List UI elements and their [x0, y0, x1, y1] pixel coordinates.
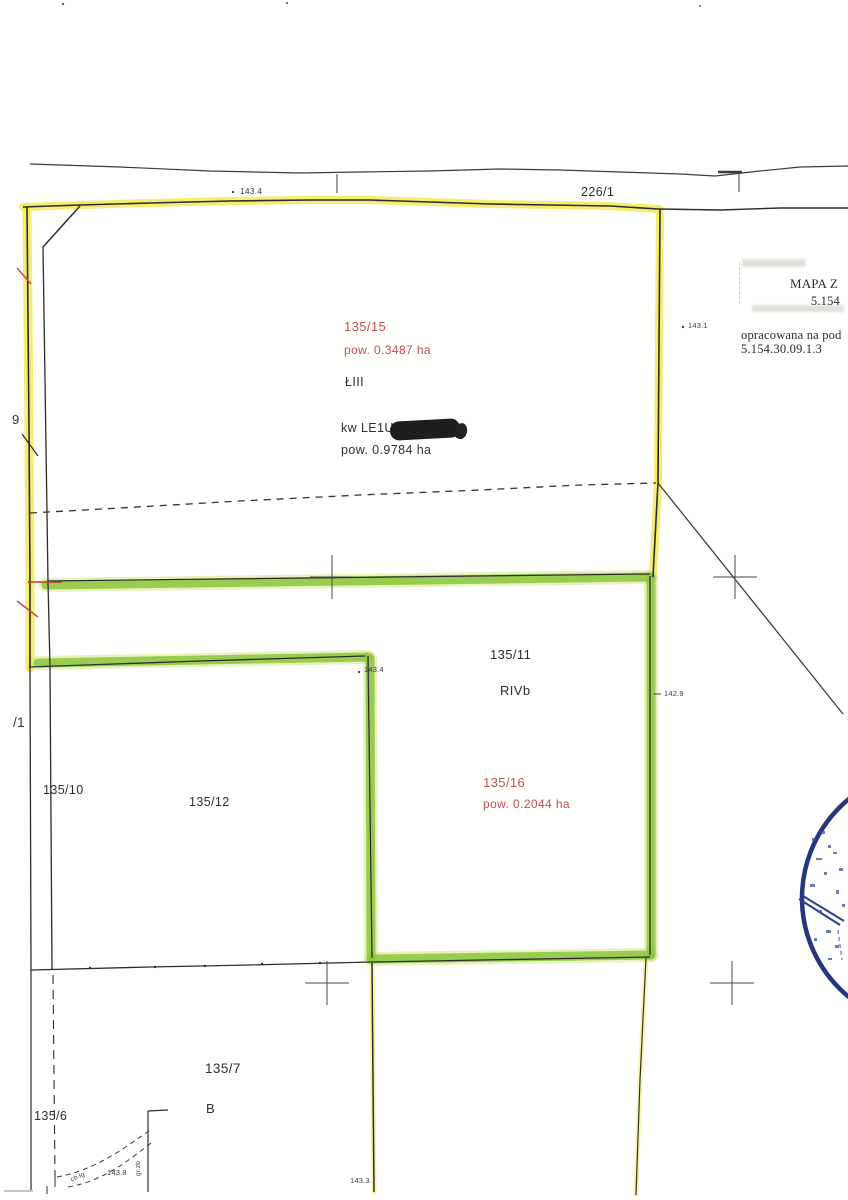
title-block-line4: 5.154.30.09.1.3	[741, 343, 822, 356]
parcel-label-135-6: 135/6	[34, 1110, 67, 1123]
area-label-135-16: pow. 0.2044 ha	[483, 798, 570, 810]
dashed-division-line	[30, 483, 656, 513]
title-block-line2: 5.154	[740, 295, 840, 308]
title-block-line1: MAPA Z	[740, 277, 838, 290]
edge-fragment-bottom: /1	[13, 716, 25, 730]
elevation-point	[682, 326, 684, 328]
parcel-label-135-11: 135/11	[490, 648, 531, 661]
title-block-line3: opracowana na pod	[741, 329, 842, 342]
boundary-type-label: gr.zb	[136, 1161, 143, 1176]
elevation-label-143-4-corner: 143.4	[364, 666, 384, 674]
redaction-scribble	[390, 418, 461, 441]
area-label-135-15: pow. 0.3487 ha	[344, 344, 431, 356]
edge-fragment-top: 9	[12, 413, 20, 426]
road-edge-line	[30, 164, 848, 193]
map-linework	[0, 0, 848, 1200]
diagonal-boundary	[658, 483, 843, 714]
land-class-label-135-11: RIVb	[500, 684, 531, 697]
parcel-label-135-7: 135/7	[205, 1062, 241, 1076]
elevation-point	[232, 191, 234, 193]
building-label-b: B	[206, 1102, 215, 1115]
scan-specks	[62, 2, 701, 7]
faded-text-bar	[742, 259, 806, 267]
parcel-label-135-16: 135/16	[483, 776, 525, 789]
elevation-point	[358, 671, 360, 673]
elevation-label-road: 143.4	[240, 187, 262, 196]
elevation-label-143-1: 143.1	[688, 322, 708, 330]
parcel-label-135-10: 135/10	[43, 784, 84, 797]
elevation-label-143-8: 143.8	[107, 1169, 127, 1177]
elevation-label-142-9: 142.9	[664, 690, 684, 698]
official-stamp	[799, 770, 848, 1026]
parcel-label-226-1: 226/1	[581, 186, 614, 199]
total-area-label: pow. 0.9784 ha	[341, 444, 431, 457]
register-label-kw: kw LE1U	[341, 422, 394, 435]
parcel-label-135-12: 135/12	[189, 796, 230, 809]
scanned-cadastral-map: 143.4 226/1 135/15 pow. 0.3487 ha ŁIII k…	[0, 0, 848, 1200]
green-highlight-bands	[38, 577, 651, 959]
elevation-label-143-3: 143.3	[350, 1177, 370, 1185]
parcel-label-135-15: 135/15	[344, 320, 386, 333]
land-class-label-135-15: ŁIII	[345, 376, 364, 389]
yellow-highlight-bands	[23, 200, 660, 1195]
